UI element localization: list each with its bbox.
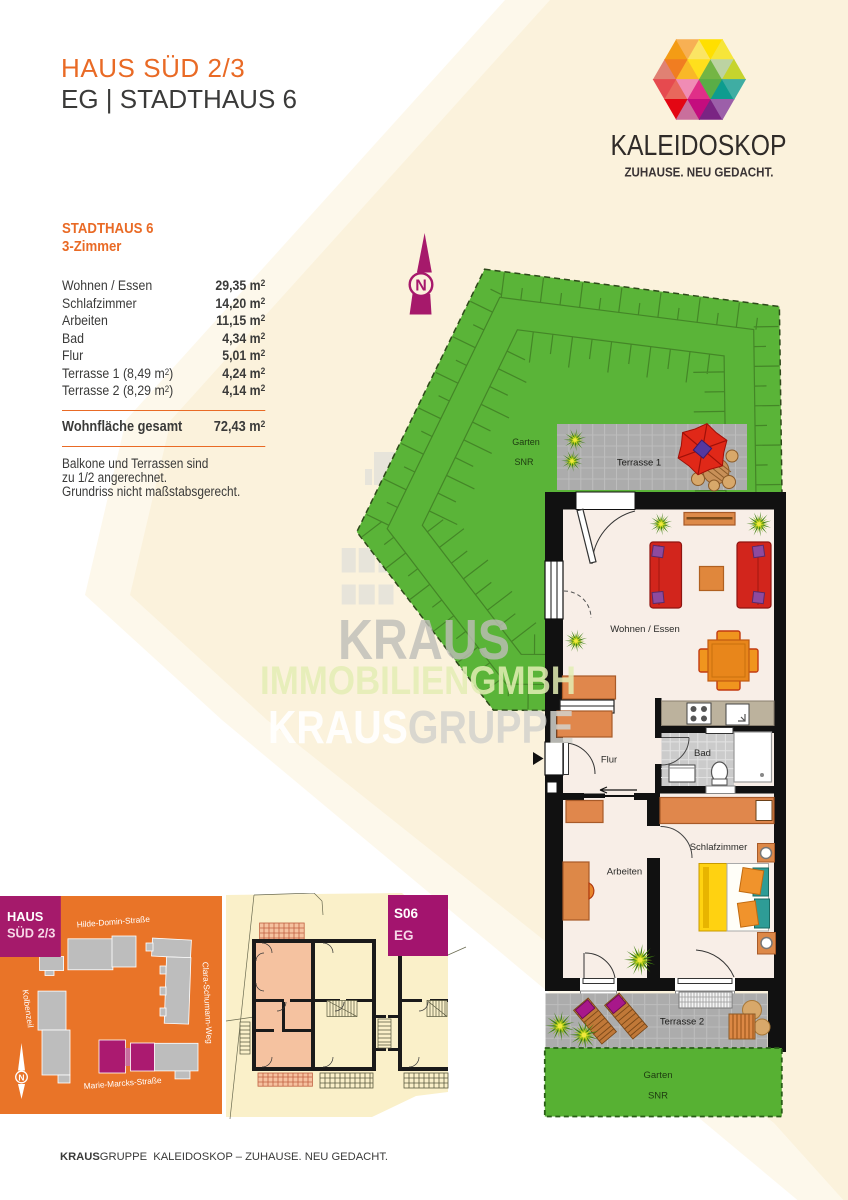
svg-text:KALEIDOSKOP: KALEIDOSKOP bbox=[611, 130, 787, 162]
svg-text:N: N bbox=[18, 1073, 24, 1083]
svg-text:ZUHAUSE. NEU GEDACHT.: ZUHAUSE. NEU GEDACHT. bbox=[625, 165, 774, 180]
svg-text:KRAUSGRUPPE: KRAUSGRUPPE bbox=[268, 701, 574, 753]
svg-text:SÜD 2/3: SÜD 2/3 bbox=[7, 926, 55, 941]
svg-text:S06: S06 bbox=[394, 906, 419, 921]
svg-text:HAUS: HAUS bbox=[7, 909, 44, 924]
svg-text:EG: EG bbox=[394, 928, 414, 943]
svg-text:IMMOBILIENGMBH: IMMOBILIENGMBH bbox=[260, 659, 576, 703]
